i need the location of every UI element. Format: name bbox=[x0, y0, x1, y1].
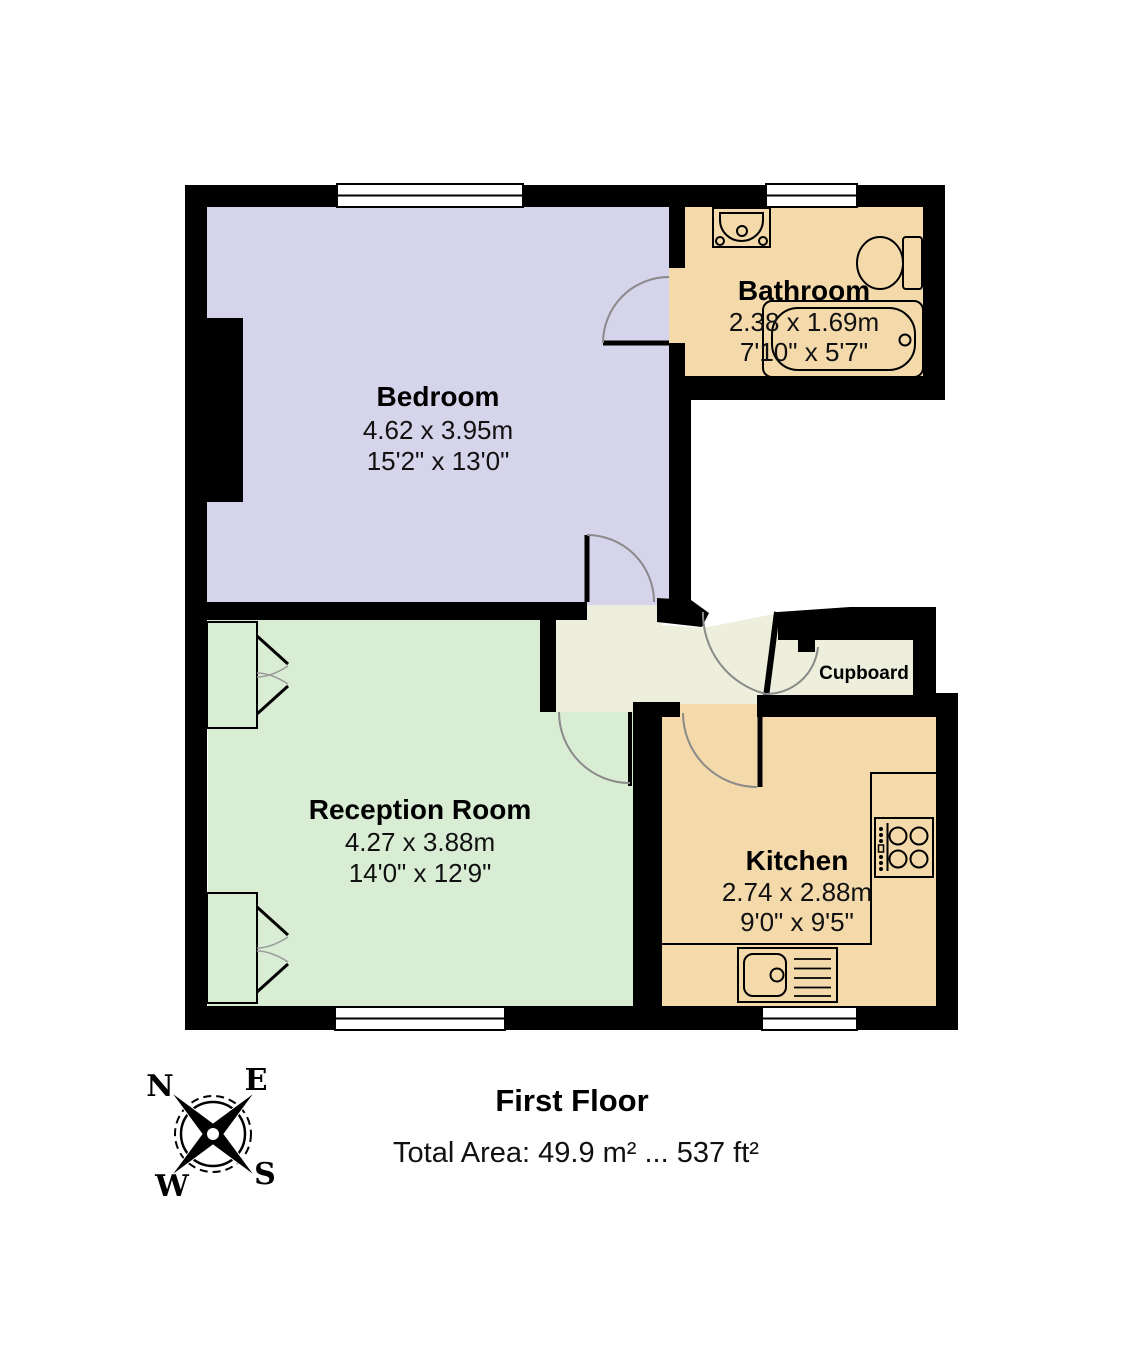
wall-reception-kitchen-divider bbox=[633, 702, 662, 1006]
floor-plan-canvas: Bedroom 4.62 x 3.95m 15'2" x 13'0" Bathr… bbox=[0, 0, 1142, 1359]
wall-kitchen-top-left bbox=[633, 702, 680, 717]
reception-metric: 4.27 x 3.88m bbox=[345, 827, 495, 857]
compass-north: N bbox=[146, 1069, 173, 1104]
wall-kitchen-right bbox=[936, 693, 958, 1030]
bedroom-imperial: 15'2" x 13'0" bbox=[367, 446, 510, 476]
wall-cupboard-right bbox=[913, 640, 936, 695]
wall-bedroom-bottom bbox=[185, 602, 587, 620]
floor-title: First Floor bbox=[495, 1083, 648, 1118]
wall-hall-angled-left bbox=[657, 598, 709, 627]
compass-rose: N E W S bbox=[146, 1063, 276, 1204]
kitchen-window bbox=[762, 1007, 857, 1030]
footer: First Floor Total Area: 49.9 m² ... 537 … bbox=[393, 1083, 759, 1169]
wall-bathroom-right bbox=[923, 185, 945, 400]
bathroom-metric: 2.38 x 1.69m bbox=[729, 307, 879, 337]
wall-bed-bath-divider-lower bbox=[669, 343, 685, 376]
bathroom-label: Bathroom bbox=[738, 275, 870, 306]
kitchen-label: Kitchen bbox=[746, 845, 849, 876]
reception-imperial: 14'0" x 12'9" bbox=[349, 858, 492, 888]
bathroom-door-threshold bbox=[669, 268, 685, 343]
reception-window bbox=[335, 1007, 505, 1030]
kitchen-door-threshold bbox=[680, 704, 757, 717]
bedroom-window bbox=[337, 184, 523, 207]
compass-east: E bbox=[245, 1063, 268, 1098]
wall-bathroom-bottom bbox=[669, 376, 945, 400]
wall-hall-reception-stub bbox=[540, 602, 556, 712]
compass-south: S bbox=[254, 1157, 276, 1192]
kitchen-imperial: 9'0" x 9'5" bbox=[740, 907, 854, 937]
bedroom-metric: 4.62 x 3.95m bbox=[363, 415, 513, 445]
cupboard-label: Cupboard bbox=[819, 663, 909, 684]
wall-bed-bath-divider-upper bbox=[669, 207, 685, 268]
compass-hub bbox=[206, 1127, 220, 1141]
bathroom-window bbox=[766, 184, 857, 207]
wall-cupboard-left bbox=[798, 640, 815, 652]
chimney-breast bbox=[207, 318, 243, 502]
wall-below-bathroom bbox=[669, 400, 691, 605]
wall-kitchen-top-right bbox=[757, 695, 958, 717]
kitchen-metric: 2.74 x 2.88m bbox=[722, 877, 872, 907]
total-area: Total Area: 49.9 m² ... 537 ft² bbox=[393, 1137, 759, 1169]
bathroom-imperial: 7'10" x 5'7" bbox=[740, 337, 868, 367]
bedroom-label: Bedroom bbox=[377, 381, 500, 412]
reception-label: Reception Room bbox=[309, 794, 531, 825]
compass-west: W bbox=[154, 1169, 190, 1204]
wall-cupboard-top bbox=[778, 607, 936, 640]
